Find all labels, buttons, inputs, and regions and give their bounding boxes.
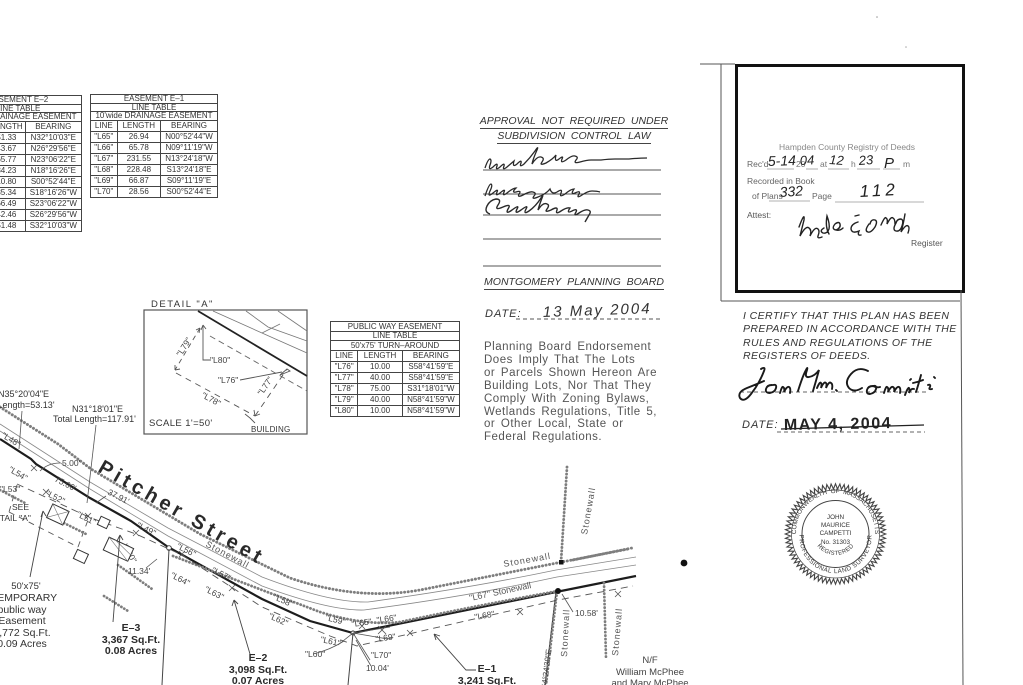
svg-text:CAMPETTI: CAMPETTI (820, 530, 852, 537)
svg-text:Stonewall: Stonewall (579, 486, 597, 535)
svg-text:10.58': 10.58' (575, 608, 598, 618)
svg-text:75.00': 75.00' (53, 474, 78, 493)
svg-text:DETAIL "A": DETAIL "A" (151, 299, 214, 310)
svg-text:JOHN: JOHN (827, 514, 845, 521)
svg-text:SCALE 1'=50': SCALE 1'=50' (149, 418, 213, 429)
svg-text:3,241 Sq.Ft.: 3,241 Sq.Ft. (458, 675, 516, 685)
svg-text:SEE: SEE (12, 502, 29, 512)
svg-text:"L52": "L52" (44, 488, 67, 506)
svg-text:11.34': 11.34' (128, 566, 151, 576)
svg-text:"L60": "L60" (305, 649, 325, 659)
svg-text:"L54": "L54" (7, 464, 30, 483)
svg-text:N35°20'04"E: N35°20'04"E (0, 389, 49, 399)
svg-text:Total Length=117.91': Total Length=117.91' (53, 414, 136, 424)
svg-text:E–1: E–1 (478, 663, 497, 675)
svg-text:5.00': 5.00' (62, 458, 81, 468)
svg-text:N/F: N/F (642, 655, 658, 666)
svg-text:"L69": "L69" (375, 631, 396, 644)
svg-text:"L65": "L65" (351, 616, 372, 629)
svg-text:MAURICE: MAURICE (821, 522, 850, 529)
svg-text:E–3: E–3 (122, 622, 141, 634)
svg-text:and Mary McPhee: and Mary McPhee (611, 678, 688, 685)
svg-text:No. 31303: No. 31303 (821, 539, 851, 546)
svg-text:"L76": "L76" (218, 375, 238, 385)
svg-text:"L80": "L80" (210, 355, 230, 365)
svg-text:"L62": "L62" (267, 611, 290, 628)
svg-text:"L53": "L53" (0, 484, 20, 494)
svg-text:Stonewall: Stonewall (559, 609, 572, 657)
svg-text:Stonewall: Stonewall (503, 551, 552, 569)
svg-text:"L68": "L68" (474, 609, 496, 622)
svg-text:"L64": "L64" (169, 570, 192, 588)
svg-text:E–2: E–2 (249, 652, 268, 664)
svg-text:DETAIL "A": DETAIL "A" (0, 513, 31, 523)
svg-text:"L57": "L57" (210, 565, 233, 583)
svg-text:"L63": "L63" (203, 584, 226, 602)
svg-text:Easement: Easement (0, 615, 46, 627)
svg-text:"L70": "L70" (371, 650, 391, 660)
svg-text:N31°18'01"E: N31°18'01"E (72, 404, 123, 414)
svg-text:50'x75': 50'x75' (11, 581, 41, 592)
svg-text:0.08 Acres: 0.08 Acres (105, 645, 157, 657)
svg-text:0.09 Acres: 0.09 Acres (0, 638, 47, 650)
svg-text:"L59": "L59" (325, 612, 347, 627)
svg-text:William McPhee: William McPhee (616, 667, 684, 678)
svg-text:10.04': 10.04' (366, 663, 389, 673)
svg-text:"L61": "L61" (320, 634, 342, 648)
svg-text:"L58": "L58" (272, 592, 295, 609)
svg-text:Total Length=53.13': Total Length=53.13' (0, 400, 55, 410)
svg-text:0.07 Acres: 0.07 Acres (232, 675, 284, 685)
svg-text:TEMPORARY: TEMPORARY (0, 592, 57, 604)
svg-text:BUILDING: BUILDING (251, 425, 290, 434)
svg-text:S64°24'30"E: S64°24'30"E (539, 649, 553, 685)
svg-text:Stonewall: Stonewall (610, 607, 624, 656)
